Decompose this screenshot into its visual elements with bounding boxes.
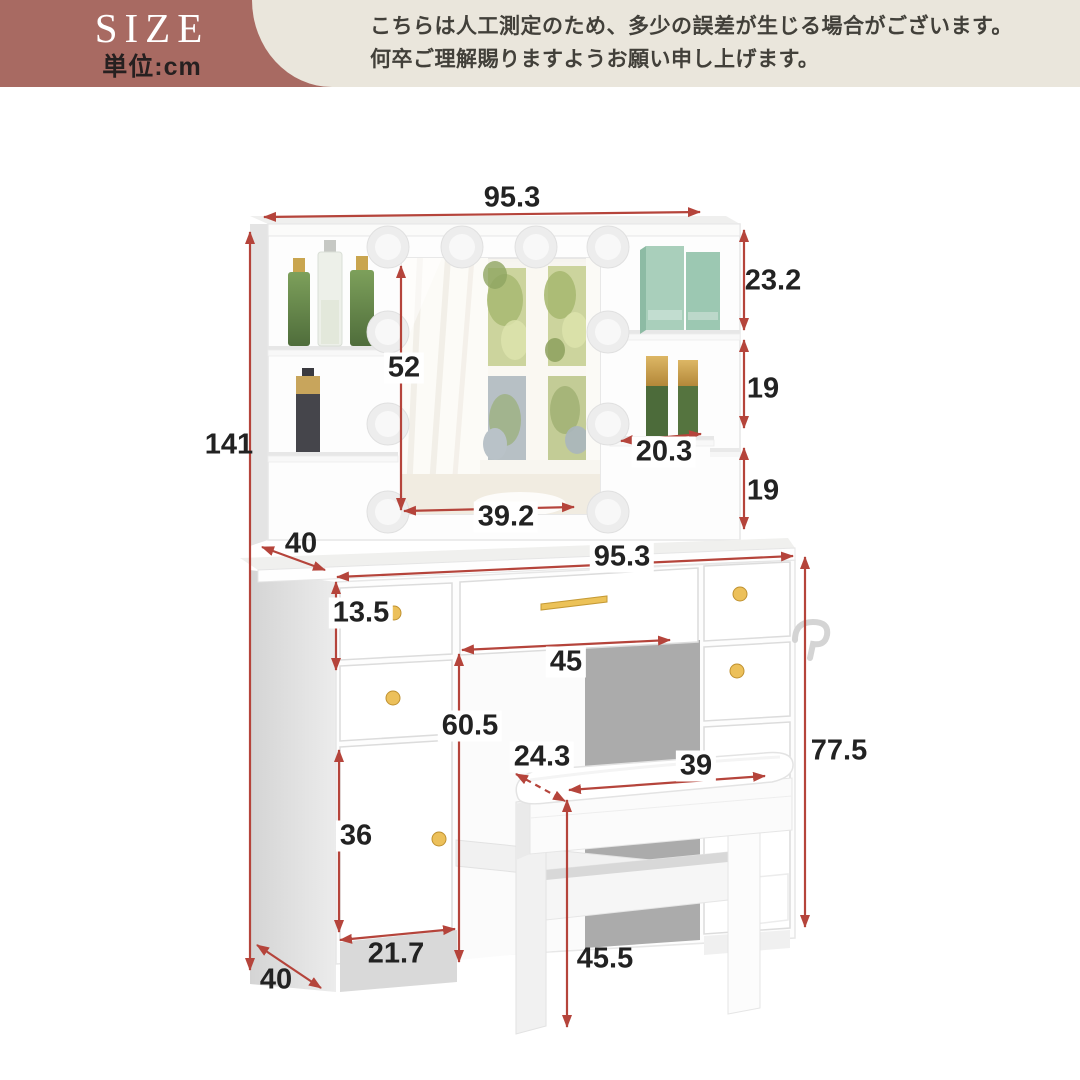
led-bulb: [587, 403, 629, 445]
mirror: [402, 258, 600, 516]
clear-bottle-liquid: [321, 300, 339, 344]
stool-box-side: [516, 800, 530, 860]
led-bulb: [367, 403, 409, 445]
dim-right-shelf-width: 20.3: [632, 437, 696, 468]
dim-right-shelf-top-height: 23.2: [745, 267, 801, 296]
bottle-cap: [356, 256, 368, 272]
dim-base-depth: 40: [260, 966, 292, 995]
drawer-right-top: [704, 562, 790, 641]
desk-left-side-panel: [250, 570, 336, 992]
drawer-center: [460, 568, 698, 655]
dim-pedestal-width: 21.7: [368, 940, 424, 969]
mirror-reflection: [402, 258, 600, 516]
dim-cabinet-door-height: 36: [336, 821, 376, 852]
dim-right-shelf-middle-height: 19: [747, 375, 779, 404]
dim-mirror-height: 52: [384, 353, 424, 384]
disclaimer-line-1: こちらは人工測定のため、多少の誤差が生じる場合がございます。: [370, 10, 1070, 43]
furniture-illustration: [0, 0, 1080, 1080]
disclaimer-text: こちらは人工測定のため、多少の誤差が生じる場合がございます。 何卒ご理解賜ります…: [370, 10, 1070, 76]
dark-bottle: [296, 394, 320, 452]
dim-desk-width: 95.3: [590, 542, 654, 573]
mint-boxes: [640, 246, 720, 334]
drawer-right-middle: [704, 642, 790, 721]
dim-desktop-depth: 40: [285, 530, 317, 559]
stool: [516, 752, 793, 1034]
dim-right-shelf-bottom-height: 19: [747, 477, 779, 506]
led-bulb: [367, 311, 409, 353]
hutch-left-side-panel: [250, 224, 268, 546]
dim-kneehole-width: 45: [546, 647, 586, 678]
dim-stool-height: 45.5: [577, 945, 633, 974]
led-bulb: [587, 491, 629, 533]
dim-drawer-height: 13.5: [329, 598, 393, 629]
dark-bottle-gold-band: [296, 376, 320, 396]
dim-table-height: 77.5: [811, 737, 867, 766]
hutch-top-edge: [268, 224, 740, 236]
led-bulb: [367, 491, 409, 533]
dim-mirror-width: 39.2: [474, 502, 538, 533]
led-bulb: [587, 311, 629, 353]
led-bulb: [441, 226, 483, 268]
dim-total-height: 141: [205, 431, 253, 460]
hutch: [250, 216, 740, 546]
dim-hutch-width: 95.3: [484, 184, 540, 213]
disclaimer-line-2: 何卒ご理解賜りますようお願い申し上げます。: [370, 43, 1070, 76]
led-bulb: [587, 226, 629, 268]
green-bottle: [288, 272, 310, 346]
led-bulb: [515, 226, 557, 268]
size-title: SIZE: [52, 4, 252, 52]
dim-kneehole-height: 60.5: [438, 711, 502, 742]
dim-stool-seat-depth: 24.3: [510, 742, 574, 773]
bottle-cap: [293, 258, 305, 274]
product-size-diagram: 95.3 141 52 39.2 23.2 19 20.3 19 40 95.3…: [0, 0, 1080, 1080]
unit-label: 単位:cm: [52, 47, 252, 83]
side-hook: [795, 622, 827, 658]
dim-stool-seat-width: 39: [676, 751, 716, 782]
led-bulb: [367, 226, 409, 268]
